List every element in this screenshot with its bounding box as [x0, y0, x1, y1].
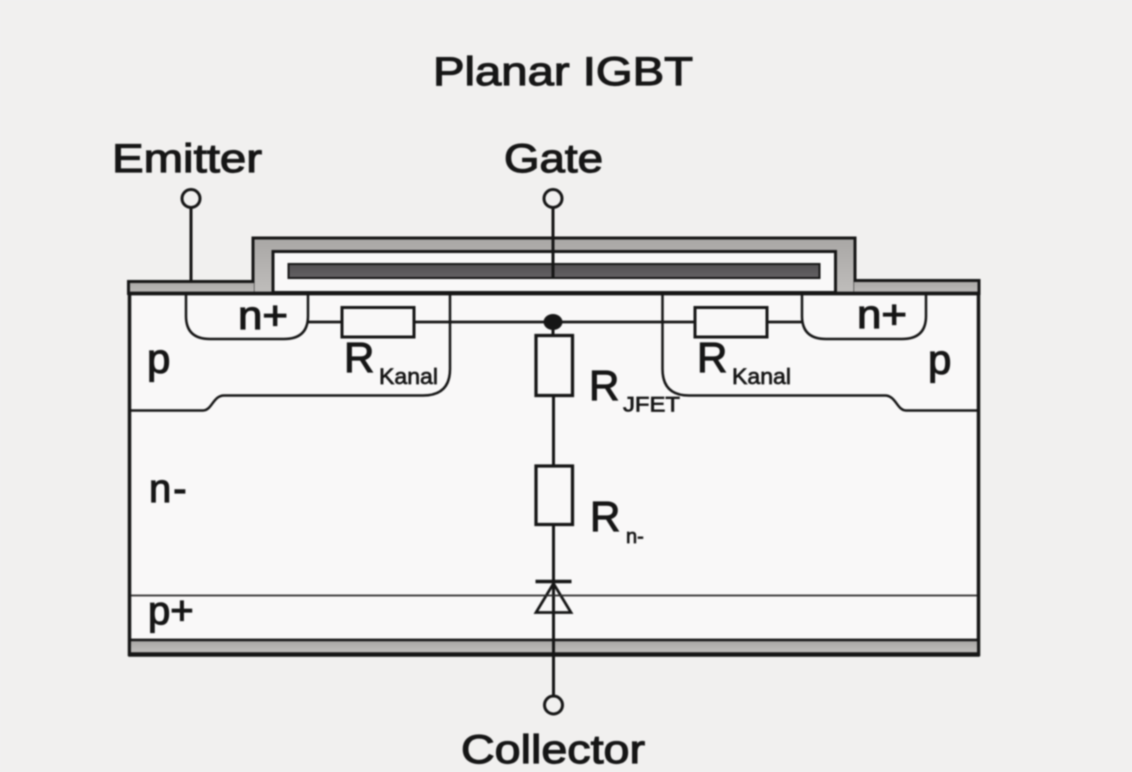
svg-text:n+: n+ — [238, 294, 288, 338]
svg-text:p: p — [928, 336, 951, 383]
svg-text:Emitter: Emitter — [112, 137, 262, 181]
svg-text:Kanal: Kanal — [732, 364, 791, 389]
svg-text:n-: n- — [149, 467, 189, 511]
svg-text:R: R — [590, 493, 620, 540]
svg-text:Collector: Collector — [461, 728, 645, 772]
svg-text:p+: p+ — [148, 589, 194, 633]
svg-text:R: R — [697, 334, 727, 381]
svg-text:JFET: JFET — [623, 394, 680, 417]
svg-text:Gate: Gate — [504, 137, 603, 181]
svg-text:p: p — [147, 335, 170, 382]
svg-text:n+: n+ — [857, 293, 907, 337]
svg-text:Kanal: Kanal — [379, 364, 438, 389]
svg-text:n-: n- — [626, 526, 644, 548]
svg-text:R: R — [589, 362, 619, 409]
svg-text:R: R — [344, 334, 374, 381]
svg-text:Planar IGBT: Planar IGBT — [433, 50, 693, 94]
